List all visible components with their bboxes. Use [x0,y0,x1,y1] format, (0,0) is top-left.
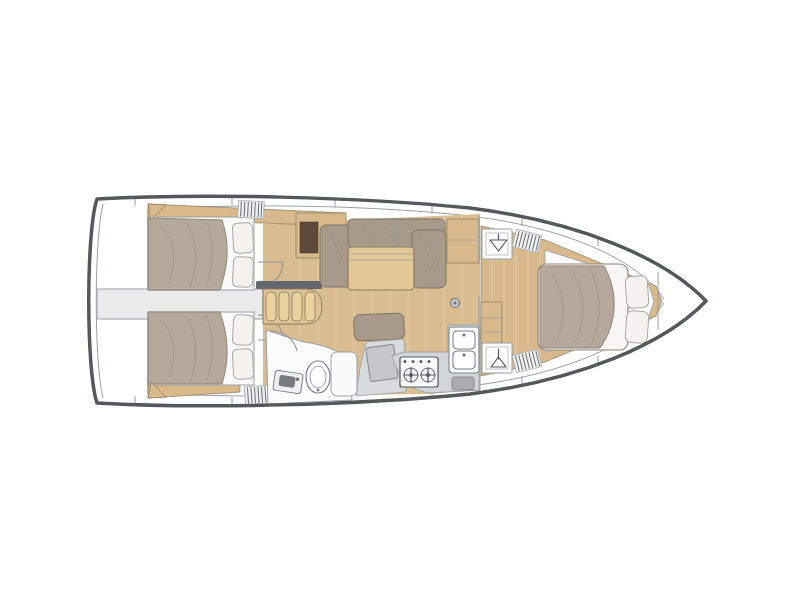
cabinet-opening [300,222,318,253]
boat-floor-plan [0,0,800,600]
aft-port-louver-vent-icon [238,200,265,218]
settee-corner-cushion [320,225,352,287]
companionway-stairs [256,281,322,324]
nav-seat-cushion [354,313,405,341]
toilet-icon [306,361,330,393]
shower-seat [331,352,357,396]
head-sink-icon [273,370,304,394]
settee-wood-chaise [447,219,479,263]
aft-port-duvet [148,218,227,290]
forward-duvet [540,266,614,348]
aft-stbd-duvet [148,312,227,384]
salon-table [348,247,414,290]
forward-cabinet [481,302,502,344]
floor-plan-canvas [0,0,800,600]
stove-icon [400,357,438,387]
chart-table [366,344,398,382]
hanging-locker-starboard-icon [482,343,512,373]
settee-right-cushion [412,230,446,288]
companionway-threshold [256,281,322,289]
mast-foot-icon [451,299,460,308]
galley-sink-icon [449,327,479,373]
galley-tray [452,377,474,390]
hanging-locker-port-icon [482,229,512,259]
